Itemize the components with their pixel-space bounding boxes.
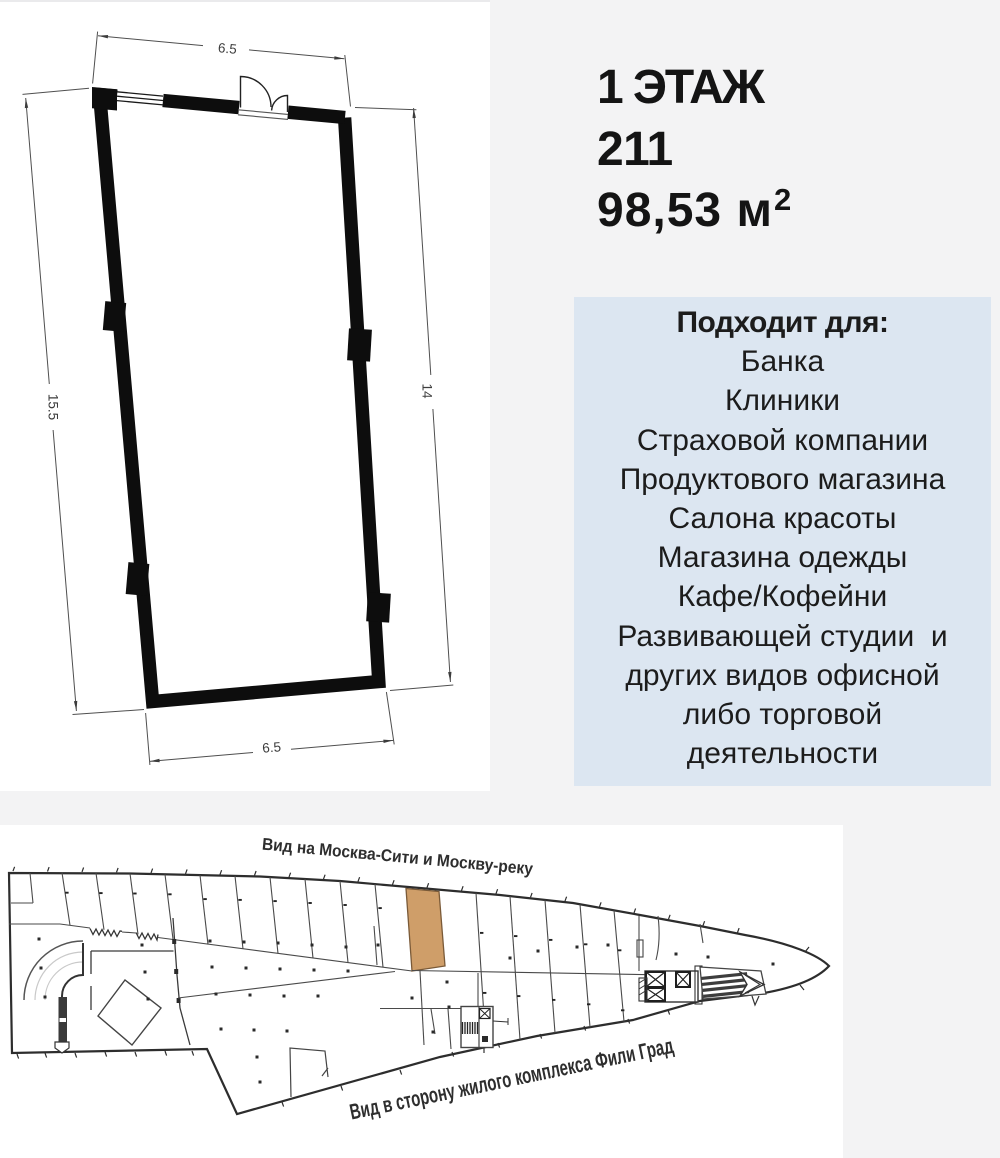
svg-text:6.5: 6.5 [217, 40, 237, 57]
svg-text:Вид на Москва-Сити и Москву-ре: Вид на Москва-Сити и Москву-реку [261, 835, 534, 879]
svg-text:15.5: 15.5 [46, 394, 61, 420]
svg-text:6.5: 6.5 [262, 739, 282, 756]
svg-text:14: 14 [420, 383, 435, 399]
